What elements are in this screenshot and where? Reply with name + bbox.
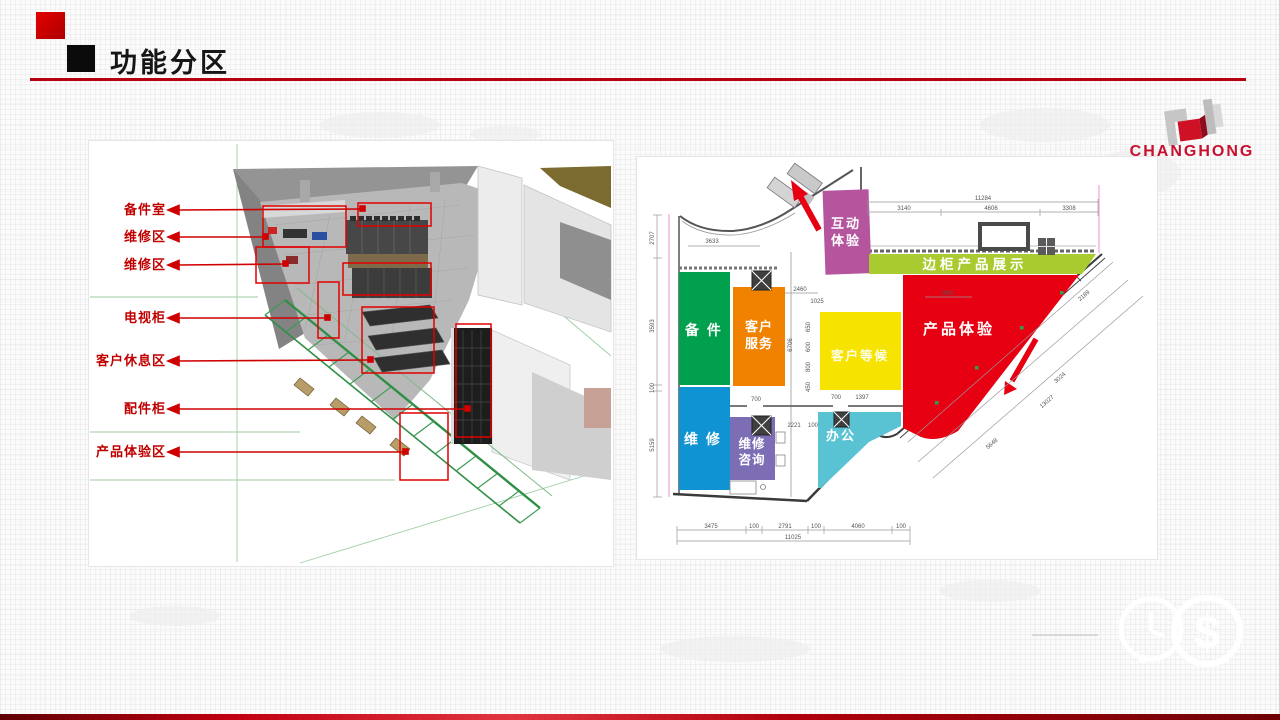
- label-bangong: 办公: [826, 428, 856, 443]
- dim-right-3: 5648: [985, 437, 1000, 451]
- changhong-logo-icon: [1163, 98, 1225, 147]
- label-weixiu: 维 修: [684, 431, 722, 447]
- partition-wall: [478, 166, 522, 305]
- label-kehufuwu-2: 服务: [745, 336, 773, 351]
- dim-inner-6: 700: [831, 395, 842, 401]
- wall-units: [1038, 238, 1055, 255]
- dim-inner-5: 700: [751, 397, 762, 403]
- dim-bottom-5: 100: [896, 524, 907, 530]
- pilaster: [300, 180, 310, 202]
- render-label-tv-cabinet: 电视柜: [16, 308, 166, 328]
- title-divider: [30, 78, 1246, 81]
- dim-inner-2: 2900: [940, 291, 954, 297]
- dim-left-2: 100: [650, 382, 656, 393]
- footer-accent-bar: [0, 714, 1280, 720]
- dim-top-2: 3308: [1062, 206, 1076, 212]
- label-kehufuwu-1: 客户: [745, 319, 773, 334]
- render-figure: [90, 144, 611, 563]
- dim-bottom-1: 100: [749, 524, 760, 530]
- header-red-square: [36, 12, 65, 39]
- money-icon: $: [1174, 598, 1240, 664]
- dim-inner-0: 3633: [705, 239, 719, 245]
- tv-wall: [451, 328, 492, 444]
- dim-inner-3: 1025: [810, 299, 824, 305]
- dim-bottom-4: 4060: [851, 524, 865, 530]
- dim-top-total: 11284: [975, 196, 992, 202]
- dim-bottom-3: 100: [811, 524, 822, 530]
- dim-top-1: 4606: [984, 206, 998, 212]
- pilaster: [430, 172, 440, 192]
- label-hudong-2: 体验: [831, 233, 861, 248]
- label-beijian: 备 件: [684, 322, 723, 338]
- render-label-repair-1: 维修区: [16, 227, 166, 247]
- floorplan-figure: 互动 体验 边柜产品展示 备 件 客户 服务 客户等候 产品体验 维 修 维修 …: [650, 163, 1143, 545]
- render-label-repair-2: 维修区: [16, 255, 166, 275]
- dim-inner-7: 1397: [855, 395, 869, 401]
- dim-inner-13: 450: [806, 381, 812, 392]
- dim-bottom-2: 2791: [778, 524, 792, 530]
- zone-office: [818, 412, 901, 488]
- dim-left-3: 5159: [650, 438, 656, 452]
- changhong-wordmark: CHANGHONG: [1126, 143, 1258, 161]
- label-weixiuzixun-2: 咨询: [738, 452, 765, 467]
- dim-inner-11: 600: [806, 341, 812, 352]
- label-kehudenghou: 客户等候: [830, 348, 889, 363]
- dim-inner-4: 6706: [788, 338, 794, 352]
- dollar-glyph: $: [1194, 606, 1220, 658]
- dim-right-2: 13027: [1039, 394, 1056, 410]
- label-hudong-1: 互动: [831, 216, 861, 231]
- watermark-icons: $: [1032, 598, 1240, 664]
- slide: 功能分区 备件室 维修区 维修区 电视柜 客户休息区 配件柜 产品体验区 CHA…: [0, 0, 1280, 720]
- render-label-spare-room: 备件室: [16, 200, 166, 220]
- dim-inner-9: 100: [808, 423, 819, 429]
- dim-top-0: 3140: [897, 206, 911, 212]
- label-weixiuzixun-1: 维修: [738, 436, 765, 451]
- header-black-square: [67, 45, 95, 72]
- dim-right-1: 3024: [1053, 371, 1068, 385]
- dim-inner-8: 2221: [787, 423, 801, 429]
- zone-product-experience: [903, 275, 1079, 439]
- tan-block: [584, 388, 611, 428]
- render-label-product-experience: 产品体验区: [16, 442, 166, 462]
- dim-left-0: 2707: [650, 231, 656, 245]
- dim-bottom-0: 3475: [704, 524, 718, 530]
- display-window: [980, 224, 1028, 249]
- dim-inner-10: 650: [806, 321, 812, 332]
- dim-inner-12: 800: [806, 361, 812, 372]
- zone-interactive-experience: [823, 189, 872, 275]
- figures-overlay: 互动 体验 边柜产品展示 备 件 客户 服务 客户等候 产品体验 维 修 维修 …: [0, 0, 1280, 720]
- dim-left-1: 3593: [650, 319, 656, 333]
- dim-bottom-total: 11025: [785, 535, 802, 541]
- label-chanpin: 产品体验: [923, 320, 995, 338]
- shelving-units: [346, 216, 432, 298]
- dim-inner-1: 2460: [793, 287, 807, 293]
- render-label-customer-rest: 客户休息区: [16, 351, 166, 371]
- page-title: 功能分区: [110, 41, 230, 80]
- render-label-accessory-cabinet: 配件柜: [16, 399, 166, 419]
- label-biangui: 边柜产品展示: [922, 256, 1028, 272]
